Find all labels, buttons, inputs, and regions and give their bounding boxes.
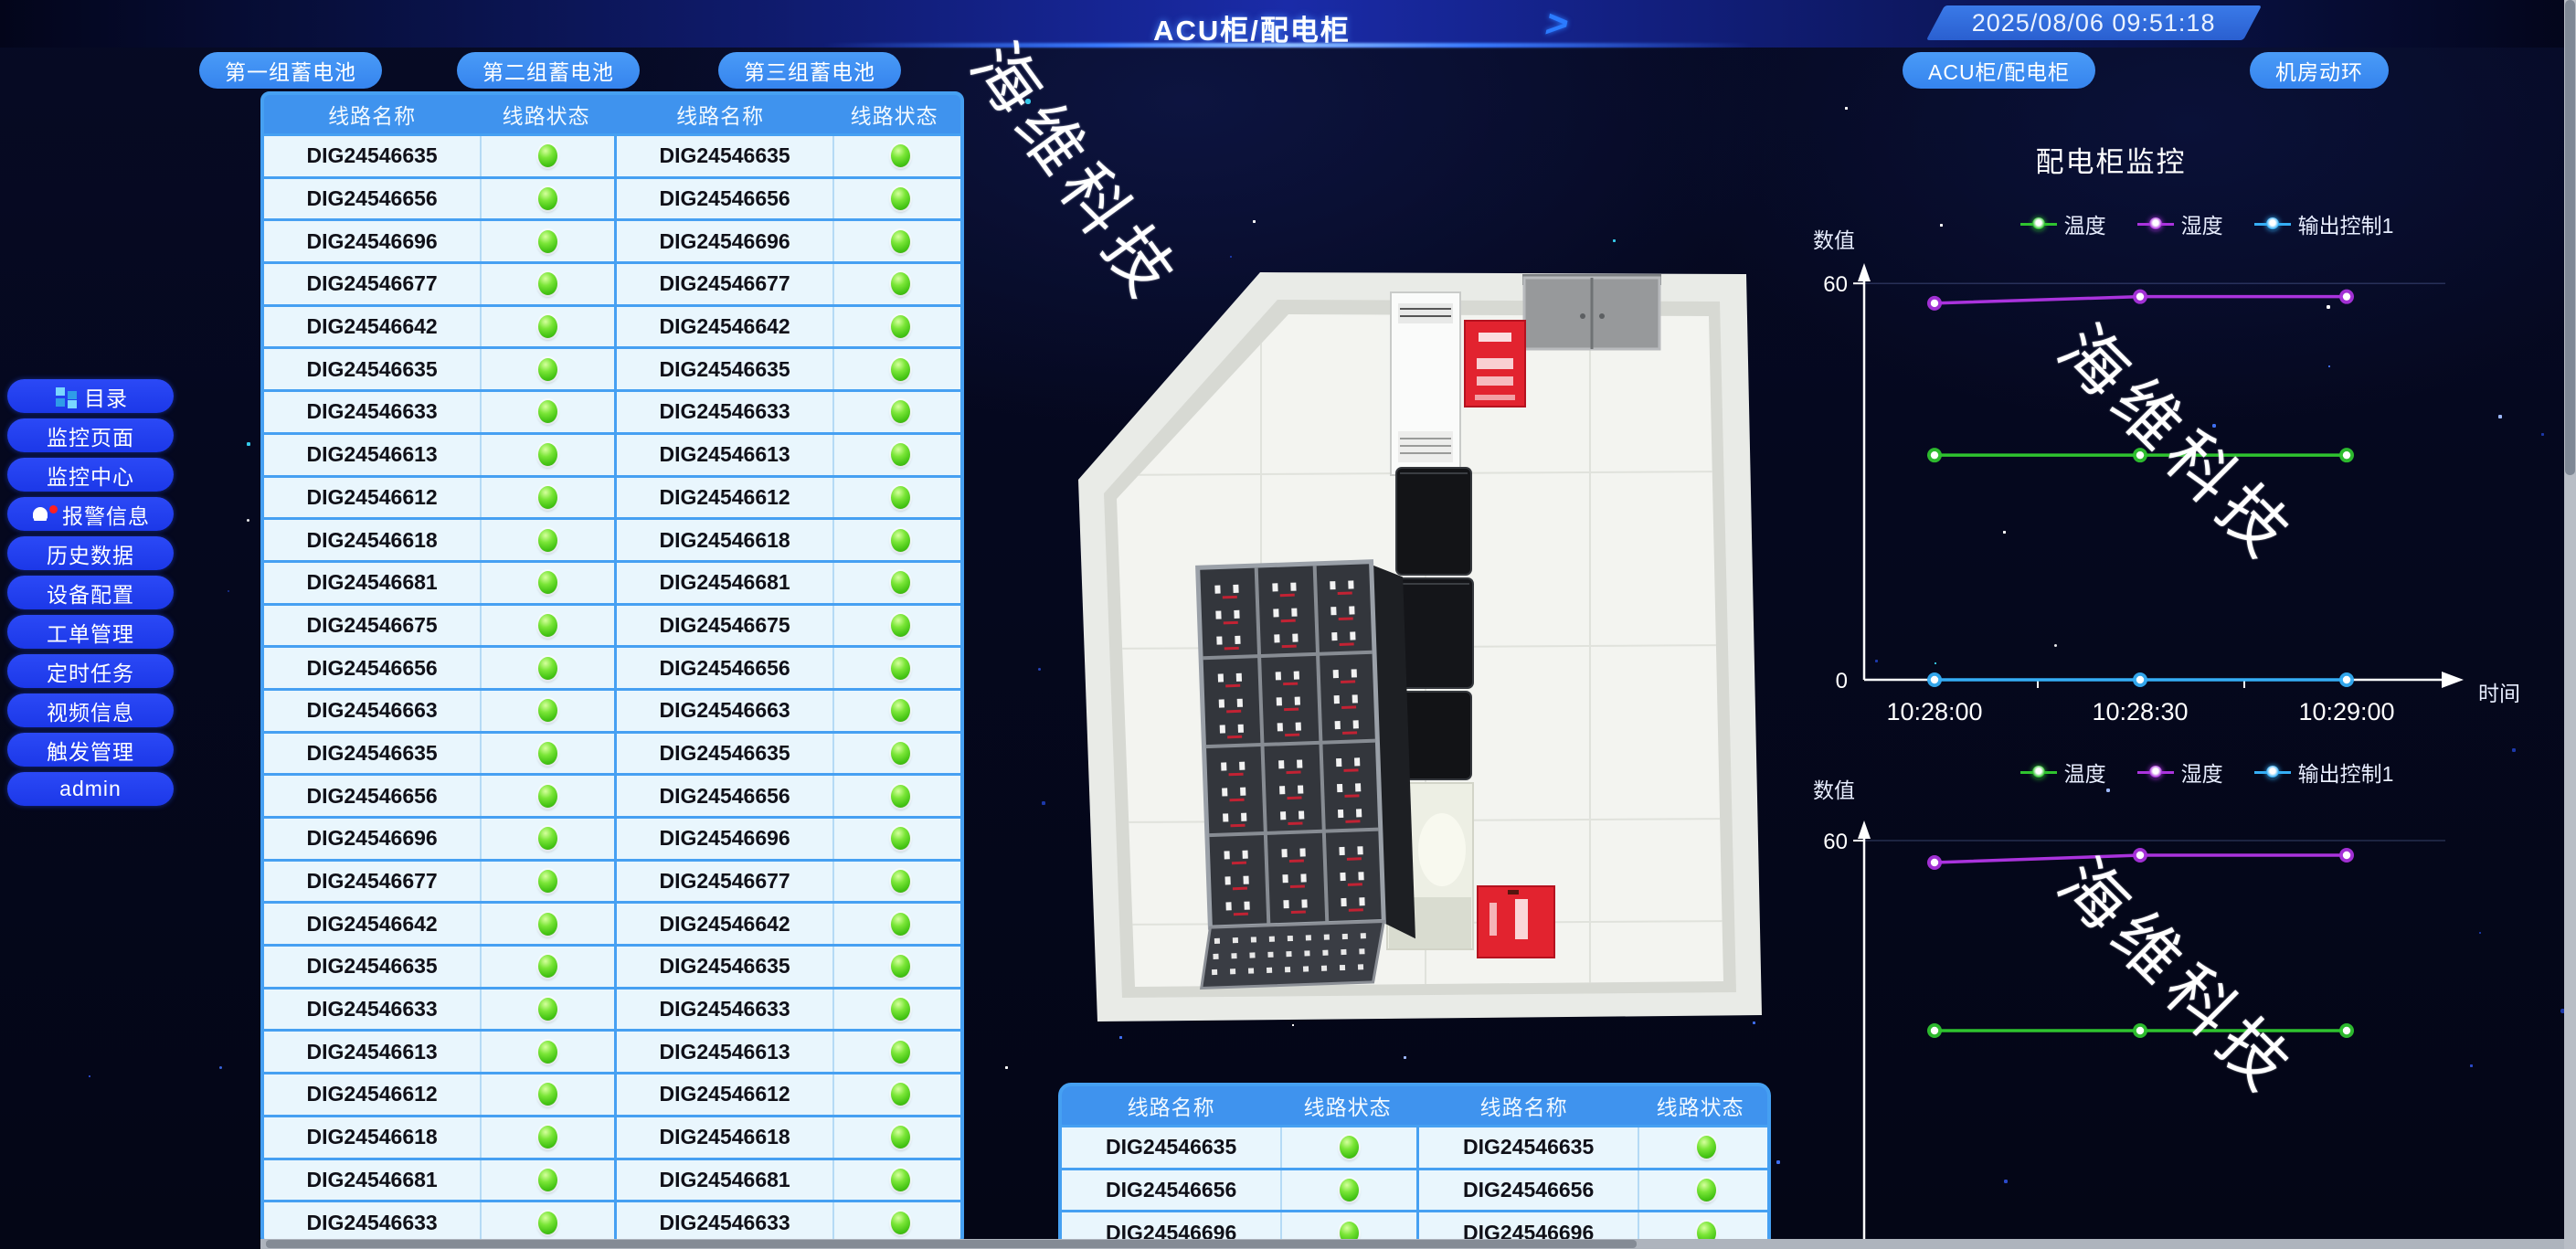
line-name-cell: DIG24546635 [264,947,482,987]
table-body: DIG24546635 DIG24546635 DIG24546656 DIG2… [1062,1125,1767,1249]
line-chart-lower: 温度湿度输出控制1 60 [1800,749,2559,1249]
line-status-cell [834,349,964,389]
line-status-cell [834,392,964,432]
table-row: DIG24546612 DIG24546612 [264,475,960,518]
line-status-cell [834,435,964,475]
status-led-green [538,955,557,978]
sidebar-item-label: 报警信息 [62,499,150,530]
status-led-green [538,1126,557,1148]
sidebar-item[interactable]: 报警信息 [7,497,174,531]
machine-room-3d-view [1014,219,1782,1078]
table-row: DIG24546635 DIG24546635 [1062,1125,1767,1168]
status-led-green [891,187,910,210]
line-status-cell [834,520,964,560]
status-led-green [538,315,557,338]
line-status-cell [482,648,617,688]
line-name-cell: DIG24546642 [264,904,482,944]
view-nav-button[interactable]: 机房动环 [2250,52,2389,89]
table-row: DIG24546656 DIG24546656 [264,645,960,688]
status-led-green [538,144,557,167]
chart-canvas: 60 [1800,749,2559,1249]
line-name-cell: DIG24546633 [617,1202,834,1243]
status-led-green [538,400,557,423]
line-chart-upper: 温度湿度输出控制1 60010:28:0010:28:3010:29:00 [1800,128,2559,749]
status-led-green [891,785,910,808]
table-header-cell: 线路名称 [264,99,480,130]
legend-item[interactable]: 温度 [2020,757,2106,788]
table-row: DIG24546635 DIG24546635 [264,133,960,176]
table-row: DIG24546663 DIG24546663 [264,688,960,731]
status-led-green [538,443,557,466]
table-row: DIG24546696 DIG24546696 [264,218,960,261]
line-status-cell [482,1117,617,1158]
line-status-cell [834,776,964,816]
line-status-cell [482,1160,617,1201]
table-header-row: 线路名称线路状态线路名称线路状态 [264,95,960,133]
line-status-cell [482,606,617,646]
battery-group-button[interactable]: 第一组蓄电池 [199,52,382,89]
line-status-cell [482,221,617,261]
line-name-cell: DIG24546612 [264,478,482,518]
line-name-cell: DIG24546618 [264,520,482,560]
horizontal-scrollbar-thumb[interactable] [266,1240,1637,1248]
line-name-cell: DIG24546681 [617,1160,834,1201]
table-row: DIG24546677 DIG24546677 [264,859,960,902]
line-status-cell [482,563,617,603]
svg-text:60: 60 [1823,830,1848,854]
line-name-cell: DIG24546675 [264,606,482,646]
fire-cabinet-bottom [1478,886,1554,958]
status-led-green [891,315,910,338]
status-led-green [538,785,557,808]
table-row: DIG24546635 DIG24546635 [264,731,960,774]
sidebar-menu: 目录 监控页面 监控中心 报警信息 历史数据 [7,379,174,806]
timestamp-badge: 2025/08/06 09:51:18 [1926,5,2262,40]
status-led-green [538,827,557,850]
line-status-cell [482,435,617,475]
status-led-green [538,998,557,1021]
line-name-cell: DIG24546642 [617,904,834,944]
status-led-green [891,998,910,1021]
line-name-cell: DIG24546612 [617,1074,834,1115]
status-led-green [538,230,557,253]
chart-legend: 温度湿度输出控制1 [1864,757,2549,788]
chevron-right-icon: > [1542,2,1574,46]
status-led-green [538,742,557,765]
status-led-green [538,1212,557,1234]
status-led-green [891,1126,910,1148]
table-header-cell: 线路状态 [1633,1090,1767,1121]
status-led-green [891,272,910,295]
battery-group-button[interactable]: 第二组蓄电池 [457,52,640,89]
sidebar-item-icon [53,385,80,408]
fire-cabinet-top [1465,321,1525,407]
line-name-cell: DIG24546675 [617,606,834,646]
bottom-line-status-table: 线路名称线路状态线路名称线路状态 DIG24546635 DIG24546635… [1058,1083,1771,1249]
line-status-cell [834,606,964,646]
status-led-green [891,1169,910,1191]
line-status-cell [1282,1170,1419,1211]
svg-text:0: 0 [1836,669,1848,693]
line-name-cell: DIG24546635 [617,947,834,987]
status-led-green [891,913,910,936]
table-row: DIG24546677 DIG24546677 [264,261,960,304]
line-status-cell [834,1117,964,1158]
line-status-cell [482,990,617,1030]
status-led-green [891,358,910,381]
line-status-cell [1639,1170,1771,1211]
line-name-cell: DIG24546618 [617,1117,834,1158]
status-led-green [891,1083,910,1106]
line-name-cell: DIG24546635 [264,734,482,774]
status-led-green [891,827,910,850]
line-name-cell: DIG24546635 [264,136,482,176]
line-status-cell [834,1160,964,1201]
sidebar-item[interactable]: 设备配置 [7,576,174,609]
status-led-green [538,614,557,637]
status-led-green [538,1083,557,1106]
line-name-cell: DIG24546613 [617,435,834,475]
svg-text:60: 60 [1823,272,1848,297]
line-status-cell [482,862,617,902]
line-status-cell [834,904,964,944]
line-name-cell: DIG24546656 [617,179,834,219]
line-status-cell [834,307,964,347]
line-status-cell [834,221,964,261]
status-led-green [891,1212,910,1234]
status-led-green [1697,1179,1716,1201]
line-name-cell: DIG24546677 [617,264,834,304]
line-status-cell [482,179,617,219]
status-led-green [891,400,910,423]
line-status-cell [482,1032,617,1072]
sidebar-item-label: 设备配置 [47,577,134,609]
line-name-cell: DIG24546642 [617,307,834,347]
status-led-green [538,657,557,680]
line-name-cell: DIG24546656 [264,648,482,688]
line-status-cell [482,904,617,944]
line-name-cell: DIG24546635 [264,349,482,389]
sidebar-item-label: 工单管理 [47,617,134,648]
status-led-green [538,529,557,552]
line-status-cell [482,307,617,347]
sidebar-item[interactable]: 触发管理 [7,733,174,767]
y-axis-label: 数值 [1813,223,1855,254]
status-led-green [1340,1136,1359,1159]
table-row: DIG24546656 DIG24546656 [264,773,960,816]
table-header-row: 线路名称线路状态线路名称线路状态 [1062,1086,1767,1125]
status-led-green [891,657,910,680]
sidebar-item-label: 监控中心 [47,460,134,491]
sidebar-item-icon [31,503,58,526]
line-name-cell: DIG24546663 [617,691,834,731]
line-name-cell: DIG24546663 [264,691,482,731]
table-header-cell: 线路名称 [1415,1090,1633,1121]
line-status-cell [834,264,964,304]
timestamp-text: 2025/08/06 09:51:18 [1972,9,2216,37]
svg-text:10:28:30: 10:28:30 [2092,698,2188,725]
room-door [1522,274,1661,349]
status-led-green [538,870,557,893]
status-led-green [891,742,910,765]
line-status-cell [482,819,617,859]
legend-item[interactable]: 输出控制1 [2254,757,2394,788]
status-led-green [891,1041,910,1064]
status-led-green [891,614,910,637]
line-name-cell: DIG24546677 [617,862,834,902]
vertical-scrollbar-thumb[interactable] [2565,0,2575,475]
legend-marker [2137,765,2174,779]
status-led-green [891,144,910,167]
table-row: DIG24546618 DIG24546618 [264,1115,960,1158]
legend-label: 湿度 [2181,757,2223,788]
table-row: DIG24546635 DIG24546635 [264,346,960,389]
status-led-green [538,187,557,210]
line-status-cell [482,349,617,389]
status-led-green [891,443,910,466]
table-row: DIG24546656 DIG24546656 [1062,1168,1767,1211]
line-status-cell [482,734,617,774]
legend-label: 湿度 [2181,208,2223,239]
line-name-cell: DIG24546677 [264,862,482,902]
battery-rack-cluster [1187,561,1417,989]
line-name-cell: DIG24546633 [617,392,834,432]
legend-item[interactable]: 湿度 [2137,757,2223,788]
status-led-green [1697,1136,1716,1159]
table-header-cell: 线路名称 [612,99,828,130]
table-row: DIG24546633 DIG24546633 [264,1200,960,1243]
line-status-cell [834,1202,964,1243]
line-name-cell: DIG24546656 [617,648,834,688]
line-status-cell [834,1032,964,1072]
x-axis-label: 时间 [2478,676,2520,707]
table-row: DIG24546696 DIG24546696 [264,816,960,859]
line-status-cell [482,1202,617,1243]
legend-item[interactable]: 输出控制1 [2254,208,2394,239]
sidebar-item-label: 目录 [84,381,128,412]
line-status-cell [482,691,617,731]
table-row: DIG24546675 DIG24546675 [264,603,960,646]
status-led-green [538,1169,557,1191]
status-led-green [891,955,910,978]
line-status-cell [834,819,964,859]
legend-label: 温度 [2064,757,2106,788]
line-name-cell: DIG24546633 [264,392,482,432]
status-led-green [538,486,557,509]
legend-item[interactable]: 湿度 [2137,208,2223,239]
view-nav-button[interactable]: ACU柜/配电柜 [1903,52,2095,89]
svg-text:10:28:00: 10:28:00 [1886,698,1982,725]
status-led-green [891,571,910,594]
line-name-cell: DIG24546681 [264,1160,482,1201]
table-row: DIG24546656 DIG24546656 [264,176,960,219]
sidebar-item[interactable]: 历史数据 [7,536,174,570]
line-name-cell: DIG24546612 [264,1074,482,1115]
line-name-cell: DIG24546642 [264,307,482,347]
table-row: DIG24546642 DIG24546642 [264,901,960,944]
line-name-cell: DIG24546633 [264,990,482,1030]
table-row: DIG24546633 DIG24546633 [264,987,960,1030]
table-row: DIG24546613 DIG24546613 [264,1029,960,1072]
line-status-cell [834,947,964,987]
line-name-cell: DIG24546612 [617,478,834,518]
svg-text:10:29:00: 10:29:00 [2298,698,2394,725]
legend-label: 温度 [2064,208,2106,239]
legend-marker [2254,765,2291,779]
line-name-cell: DIG24546656 [1419,1170,1639,1211]
line-name-cell: DIG24546635 [1062,1127,1282,1168]
table-row: DIG24546681 DIG24546681 [264,1158,960,1201]
sidebar-item[interactable]: 目录 [7,379,174,413]
table-body: DIG24546635 DIG24546635 DIG24546656 DIG2… [264,133,960,1246]
line-name-cell: DIG24546681 [264,563,482,603]
table-header-cell: 线路状态 [828,99,960,130]
status-led-green [891,230,910,253]
line-status-cell [1282,1127,1419,1168]
line-name-cell: DIG24546635 [617,136,834,176]
sidebar-item[interactable]: 视频信息 [7,693,174,727]
status-led-green [538,571,557,594]
horizontal-scrollbar[interactable] [260,1239,2564,1249]
legend-marker [2254,217,2291,231]
legend-marker [2020,217,2057,231]
sidebar-item-label: 触发管理 [47,735,134,766]
line-status-cell [482,478,617,518]
status-led-green [538,699,557,722]
table-header-cell: 线路状态 [480,99,612,130]
line-status-cell [834,1074,964,1115]
table-row: DIG24546681 DIG24546681 [264,560,960,603]
line-status-cell [1639,1127,1771,1168]
line-name-cell: DIG24546618 [264,1117,482,1158]
table-header-cell: 线路名称 [1062,1090,1280,1121]
line-name-cell: DIG24546696 [264,819,482,859]
line-status-cell [482,264,617,304]
sidebar-item[interactable]: 监控中心 [7,458,174,492]
line-status-cell [834,563,964,603]
vertical-scrollbar[interactable] [2564,0,2576,1249]
sidebar-item[interactable]: 工单管理 [7,615,174,649]
line-name-cell: DIG24546613 [264,435,482,475]
legend-marker [2137,217,2174,231]
status-led-green [891,486,910,509]
page-title: ACU柜/配电柜 [1060,7,1444,48]
status-led-green [538,913,557,936]
line-status-cell [834,862,964,902]
line-name-cell: DIG24546677 [264,264,482,304]
line-status-cell [834,990,964,1030]
status-led-green [891,699,910,722]
line-name-cell: DIG24546656 [264,776,482,816]
line-name-cell: DIG24546633 [264,1202,482,1243]
status-led-green [538,358,557,381]
table-row: DIG24546635 DIG24546635 [264,944,960,987]
battery-group-button[interactable]: 第三组蓄电池 [718,52,901,89]
line-name-cell: DIG24546613 [617,1032,834,1072]
line-status-table: 线路名称线路状态线路名称线路状态 DIG24546635 DIG24546635… [260,91,964,1246]
line-name-cell: DIG24546618 [617,520,834,560]
line-name-cell: DIG24546696 [617,221,834,261]
sidebar-item[interactable]: 定时任务 [7,654,174,688]
table-header-cell: 线路状态 [1280,1090,1415,1121]
line-status-cell [482,136,617,176]
line-name-cell: DIG24546696 [264,221,482,261]
line-name-cell: DIG24546656 [264,179,482,219]
chart-legend: 温度湿度输出控制1 [1864,208,2549,239]
sidebar-item-label: 监控页面 [47,420,134,451]
air-conditioner-unit [1391,292,1460,475]
legend-label: 输出控制1 [2298,757,2394,788]
line-name-cell: DIG24546656 [1062,1170,1282,1211]
line-name-cell: DIG24546613 [264,1032,482,1072]
legend-item[interactable]: 温度 [2020,208,2106,239]
status-led-green [891,529,910,552]
sidebar-item-label: 视频信息 [47,695,134,726]
line-name-cell: DIG24546633 [617,990,834,1030]
sidebar-item[interactable]: admin [7,772,174,806]
line-status-cell [482,520,617,560]
table-row: DIG24546618 DIG24546618 [264,517,960,560]
header-bar: ACU柜/配电柜 > 2025/08/06 09:51:18 [0,0,2576,48]
line-name-cell: DIG24546681 [617,563,834,603]
line-status-cell [834,691,964,731]
line-status-cell [834,478,964,518]
line-status-cell [482,947,617,987]
line-name-cell: DIG24546635 [1419,1127,1639,1168]
sidebar-item-label: 定时任务 [47,656,134,687]
line-status-cell [482,776,617,816]
table-row: DIG24546642 DIG24546642 [264,304,960,347]
line-name-cell: DIG24546696 [617,819,834,859]
line-name-cell: DIG24546635 [617,734,834,774]
sidebar-item-label: admin [59,777,122,801]
line-name-cell: DIG24546656 [617,776,834,816]
line-name-cell: DIG24546635 [617,349,834,389]
legend-label: 输出控制1 [2298,208,2394,239]
line-status-cell [834,648,964,688]
status-led-green [891,870,910,893]
line-status-cell [834,179,964,219]
y-axis-label: 数值 [1813,773,1855,804]
sidebar-item[interactable]: 监控页面 [7,418,174,452]
dashboard-screen: ACU柜/配电柜 > 2025/08/06 09:51:18 第一组蓄电池第二组… [0,0,2576,1249]
status-led-green [538,1041,557,1064]
table-row: DIG24546633 DIG24546633 [264,389,960,432]
sidebar-item-label: 历史数据 [47,538,134,569]
table-row: DIG24546613 DIG24546613 [264,432,960,475]
table-row: DIG24546612 DIG24546612 [264,1072,960,1115]
line-status-cell [482,392,617,432]
status-led-green [1340,1179,1359,1201]
line-status-cell [482,1074,617,1115]
legend-marker [2020,765,2057,779]
line-status-cell [834,136,964,176]
status-led-green [538,272,557,295]
line-status-cell [834,734,964,774]
